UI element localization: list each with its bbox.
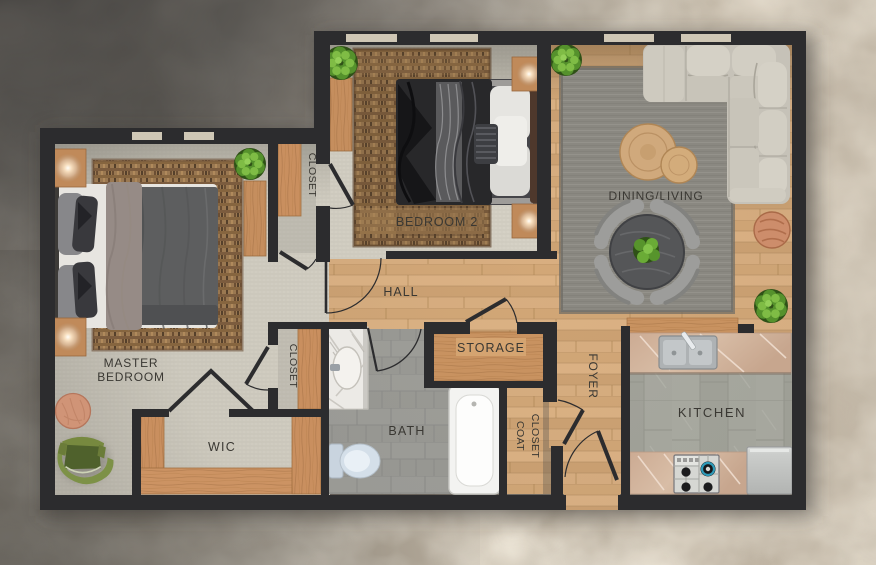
svg-text:COAT: COAT — [514, 421, 526, 451]
svg-text:HALL: HALL — [383, 285, 418, 299]
svg-text:WIC: WIC — [208, 440, 236, 454]
svg-text:MASTER: MASTER — [104, 356, 159, 370]
svg-text:CLOSET: CLOSET — [287, 344, 299, 389]
svg-text:BATH: BATH — [388, 424, 425, 438]
svg-text:BEDROOM 2: BEDROOM 2 — [396, 215, 478, 229]
svg-text:FOYER: FOYER — [586, 353, 600, 398]
svg-text:BEDROOM: BEDROOM — [97, 370, 165, 384]
svg-text:CLOSET: CLOSET — [529, 414, 541, 459]
svg-text:KITCHEN: KITCHEN — [678, 405, 746, 420]
svg-text:STORAGE: STORAGE — [457, 341, 525, 355]
